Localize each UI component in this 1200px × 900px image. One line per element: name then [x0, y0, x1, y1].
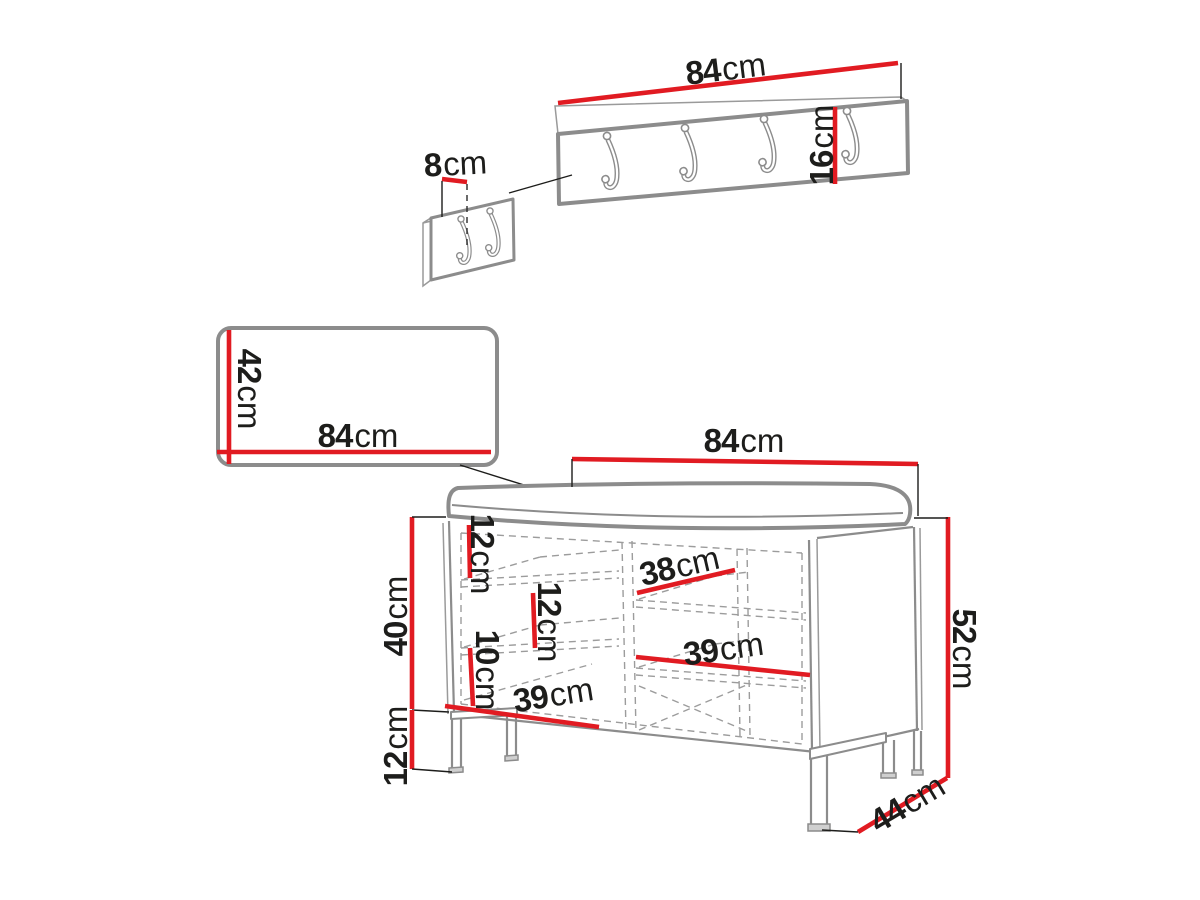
cushion-outline	[448, 483, 910, 528]
furniture-dimension-diagram: 84cm 16cm 8cm 42cm 84cm	[0, 0, 1200, 900]
bench-body-height-label: 40cm	[377, 576, 414, 657]
left-leg-back-foot	[505, 755, 518, 761]
top-shelf-gap-label: 12cm	[464, 514, 501, 595]
bench-width-label: 84cm	[704, 422, 785, 459]
panel-width-label: 84cm	[318, 417, 399, 454]
right-leg-back-foot	[881, 773, 896, 778]
hook-offset-label: 8cm	[423, 143, 488, 183]
bench-cushion	[448, 483, 910, 528]
panel-height-label: 42cm	[231, 349, 268, 430]
bottom-shelf-gap-label: 10cm	[469, 630, 506, 711]
bench-leg-height-label: 12cm	[377, 706, 414, 787]
rack-height-label: 16cm	[803, 105, 840, 186]
bench-total-height-label: 52cm	[946, 609, 983, 690]
middle-shelf-gap-label: 12cm	[531, 582, 568, 663]
